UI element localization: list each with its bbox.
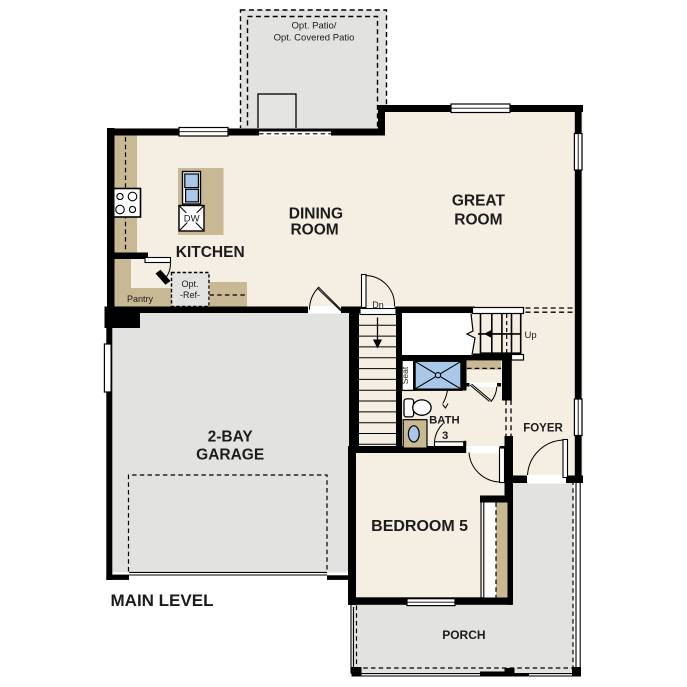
svg-text:Dn: Dn <box>372 300 384 310</box>
svg-text:3: 3 <box>442 430 448 442</box>
svg-text:ROOM: ROOM <box>454 212 502 229</box>
svg-text:2-BAY: 2-BAY <box>208 429 254 446</box>
svg-text:ROOM: ROOM <box>290 222 338 239</box>
svg-text:MAIN LEVEL: MAIN LEVEL <box>111 591 214 610</box>
svg-text:Pantry: Pantry <box>127 294 154 304</box>
svg-text:Up: Up <box>525 330 537 341</box>
svg-text:Opt.: Opt. <box>181 279 198 289</box>
svg-text:BEDROOM 5: BEDROOM 5 <box>371 518 468 535</box>
svg-text:PORCH: PORCH <box>442 628 485 642</box>
svg-text:Opt. Patio/: Opt. Patio/ <box>292 21 337 32</box>
svg-text:-Ref-: -Ref- <box>180 290 200 300</box>
svg-text:KITCHEN: KITCHEN <box>176 244 245 261</box>
svg-text:DINING: DINING <box>289 205 343 222</box>
svg-text:GREAT: GREAT <box>452 193 506 210</box>
svg-text:FOYER: FOYER <box>523 423 563 435</box>
svg-text:Seat: Seat <box>400 366 410 384</box>
svg-text:BATH: BATH <box>429 415 460 427</box>
svg-text:GARAGE: GARAGE <box>196 447 264 464</box>
svg-text:Opt. Covered Patio: Opt. Covered Patio <box>274 33 355 44</box>
svg-text:DW: DW <box>184 214 200 225</box>
